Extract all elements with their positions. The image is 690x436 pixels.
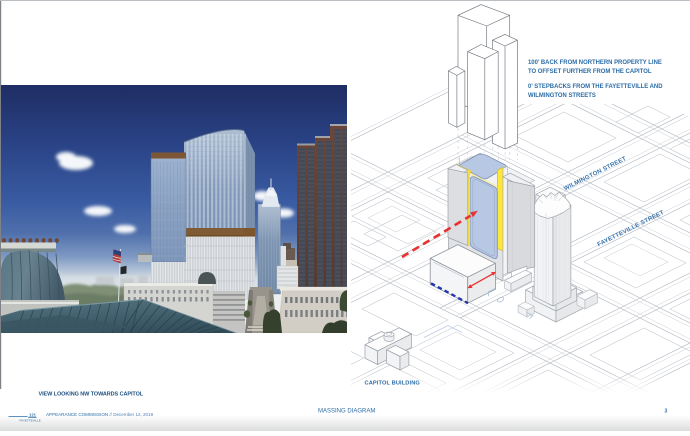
svg-text:CAPITOL BUILDING: CAPITOL BUILDING [365,380,421,386]
svg-text:3: 3 [665,409,668,415]
svg-text:0’ STEPBACKS FROM THE FAYETTEV: 0’ STEPBACKS FROM THE FAYETTEVILLE AND [528,84,663,90]
svg-text:MASSING DIAGRAM: MASSING DIAGRAM [318,409,375,415]
svg-text:APPEARANCE COMMISSION // Decem: APPEARANCE COMMISSION // December 12, 20… [46,412,154,417]
svg-text:121: 121 [29,412,37,417]
svg-text:FAYETTEVILLE: FAYETTEVILLE [20,419,41,423]
svg-text:WILMINGTON STREETS: WILMINGTON STREETS [528,93,596,99]
svg-text:VIEW LOOKING NW TOWARDS CAPITO: VIEW LOOKING NW TOWARDS CAPITOL [39,392,144,398]
svg-text:TO OFFSET FURTHER FROM THE CAP: TO OFFSET FURTHER FROM THE CAPITOL [528,69,652,75]
svg-text:100’ BACK FROM NORTHERN PROPER: 100’ BACK FROM NORTHERN PROPERTY LINE [528,60,662,66]
